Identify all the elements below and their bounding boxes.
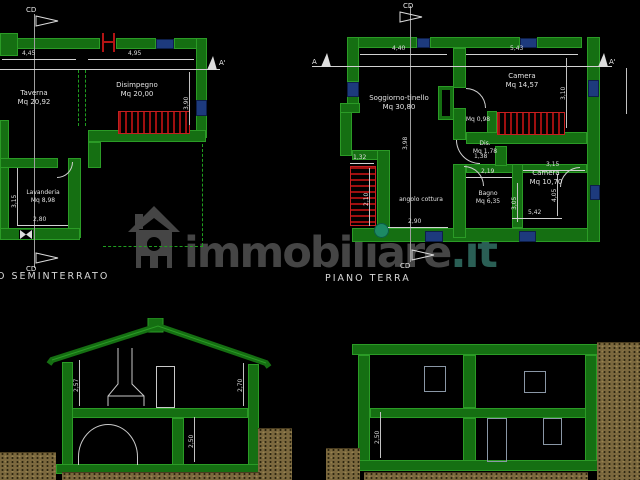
- section-marker-label: CD: [400, 263, 410, 270]
- niche: [442, 90, 450, 116]
- dimension-line: [360, 54, 447, 55]
- room-name: Soggiorno-tinello: [356, 94, 442, 103]
- wall-segment: [352, 228, 600, 242]
- room-area: Mq 10,70: [518, 178, 574, 187]
- room-name: Dis.: [468, 140, 502, 148]
- dashed-boundary-line: [103, 246, 203, 247]
- wall-segment: [463, 355, 476, 408]
- wall-segment: [377, 150, 390, 230]
- dimension-line: [466, 54, 578, 55]
- wall-segment: [352, 344, 600, 355]
- dimension-line: [388, 227, 448, 228]
- dimension-line: [626, 68, 627, 114]
- window-symbol: [519, 231, 536, 242]
- window-symbol: [590, 185, 600, 200]
- door-outline: [487, 418, 507, 462]
- room-label-camera1: Camera Mq 14,57: [492, 72, 552, 90]
- dimension-label: 3,90: [184, 97, 190, 110]
- dimension-label: 2,10: [364, 193, 370, 206]
- window-symbol: [588, 80, 599, 97]
- fireplace-outline: [100, 344, 160, 408]
- floor-slab: [72, 408, 248, 418]
- ground-hatch: [326, 448, 360, 480]
- door-outline: [156, 366, 175, 408]
- stair-hatch: [118, 111, 190, 134]
- wall-segment: [453, 48, 466, 88]
- dimension-line: [466, 177, 512, 178]
- room-name: Disimpegno: [106, 81, 168, 90]
- dimension-label: 3,98: [403, 137, 409, 150]
- room-area: Mq 30,80: [356, 103, 442, 112]
- room-name: angolo cottura: [390, 196, 452, 204]
- section-line-aa: [312, 66, 612, 67]
- section-marker-triangle-icon: [320, 52, 332, 68]
- dimension-label: 2,90: [408, 219, 421, 225]
- dimension-line: [350, 163, 374, 164]
- wall-segment: [0, 33, 18, 56]
- wall-segment: [0, 228, 80, 240]
- dimension-label: 5,43: [510, 46, 523, 52]
- floor-slab: [370, 408, 586, 418]
- floor-plan-title: O SEMINTERRATO: [0, 271, 109, 282]
- room-area: Mq 8,98: [18, 197, 68, 205]
- door-swing-arc: [466, 88, 486, 108]
- wall-segment: [585, 355, 597, 467]
- room-label-soggiorno: Soggiorno-tinello Mq 30,80: [356, 94, 442, 112]
- section-marker-flag-icon: [35, 252, 61, 265]
- wall-segment: [340, 112, 352, 156]
- ground-hatch: [258, 428, 292, 480]
- room-label-lavanderia: Lavanderia Mq 8,98: [18, 189, 68, 204]
- section-marker-label: A': [219, 60, 226, 67]
- room-area: Mq 0,98: [462, 116, 494, 124]
- dimension-label: 3,15: [546, 162, 559, 168]
- dimension-label: 2,50: [189, 435, 195, 448]
- room-name: Taverna: [6, 89, 62, 98]
- room-label-bagno: Bagno Mq 6,35: [466, 190, 510, 205]
- dimension-label: 2,57: [74, 379, 80, 392]
- section-marker-flag-icon: [35, 15, 61, 28]
- dimension-label: 2,50: [375, 431, 381, 444]
- room-label-cottura: angolo cottura: [390, 196, 452, 204]
- dimension-label: 2,70: [238, 379, 244, 392]
- ground-hatch: [597, 342, 640, 480]
- section-marker-triangle-icon: [206, 55, 218, 71]
- room-label-taverna: Taverna Mq 20,92: [6, 89, 62, 107]
- room-area: Mq 14,57: [492, 81, 552, 90]
- window-symbol-red: [100, 33, 117, 52]
- floor-slab: [352, 460, 600, 471]
- wall-segment: [463, 418, 476, 462]
- section-marker-flag-icon: [399, 11, 425, 24]
- wall-segment: [116, 38, 156, 49]
- room-label-ripostiglio: Mq 0,98: [462, 116, 494, 124]
- room-name: Lavanderia: [18, 189, 68, 197]
- dimension-label: 4,40: [392, 46, 405, 52]
- wall-segment: [537, 37, 582, 48]
- dashed-partition-line: [78, 70, 79, 126]
- dimension-line: [88, 59, 194, 60]
- bowtie-icon: [20, 230, 32, 239]
- dimension-label: 4,95: [128, 51, 141, 57]
- room-area: Mq 6,35: [466, 198, 510, 206]
- room-name: Bagno: [466, 190, 510, 198]
- window-symbol: [425, 231, 443, 242]
- wall-segment: [0, 158, 58, 168]
- section-marker-label: CD: [403, 3, 413, 10]
- wall-segment: [0, 120, 9, 240]
- dimension-label: 3,10: [561, 87, 567, 100]
- dimension-label: 5,42: [528, 210, 541, 216]
- room-name: Camera: [518, 169, 574, 178]
- room-label-camera2: Camera Mq 10,70: [518, 169, 574, 187]
- dimension-line: [17, 225, 68, 226]
- section-marker-label: CD: [26, 7, 36, 14]
- wall-segment: [172, 418, 184, 466]
- arch-outline: [78, 424, 138, 465]
- wall-segment: [430, 37, 520, 48]
- window-symbol: [417, 38, 430, 48]
- dimension-line: [2, 59, 76, 60]
- window-outline: [424, 366, 446, 392]
- section-marker-flag-icon: [411, 249, 437, 262]
- cad-drawing-canvas: immobiliare.it: [0, 0, 640, 480]
- wall-segment: [196, 38, 207, 138]
- window-outline: [524, 371, 546, 393]
- dimension-line: [512, 218, 562, 219]
- dimension-label: 4,05: [552, 189, 558, 202]
- ground-hatch: [0, 452, 56, 480]
- wall-segment: [347, 37, 359, 82]
- dimension-label: 4,45: [22, 51, 35, 57]
- room-name: Camera: [492, 72, 552, 81]
- section-marker-triangle-icon: [597, 52, 609, 68]
- dimension-label: 2,80: [33, 217, 46, 223]
- ground-hatch: [364, 472, 588, 480]
- section-marker-label: A': [609, 59, 616, 66]
- room-area: Mq 20,00: [106, 90, 168, 99]
- room-label-dis: Dis. Mq 1,78: [468, 140, 502, 155]
- drawing-layer: CD CD A' 4,45 4,95 3,90 3,15 2,80 Tavern…: [0, 0, 640, 480]
- section-line-aa: [0, 69, 220, 70]
- dashed-boundary-line: [202, 144, 203, 246]
- room-label-disimpegno: Disimpegno Mq 20,00: [106, 81, 168, 99]
- dimension-label: 2,19: [481, 169, 494, 175]
- wall-segment: [453, 108, 466, 140]
- wall-segment: [88, 142, 101, 168]
- dimension-label: 3,05: [512, 197, 518, 210]
- ground-hatch: [62, 472, 260, 480]
- bush-icon: [374, 223, 389, 238]
- section-marker-label: A: [312, 59, 317, 66]
- floor-plan-title: PIANO TERRA: [325, 273, 411, 284]
- room-area: Mq 20,92: [6, 98, 62, 107]
- dashed-partition-line: [85, 70, 86, 126]
- room-area: Mq 1,78: [468, 148, 502, 156]
- dimension-label: 1,32: [353, 155, 366, 161]
- stair-hatch: [497, 112, 565, 135]
- window-symbol: [156, 39, 174, 49]
- window-symbol: [196, 100, 207, 116]
- window-outline: [543, 418, 562, 445]
